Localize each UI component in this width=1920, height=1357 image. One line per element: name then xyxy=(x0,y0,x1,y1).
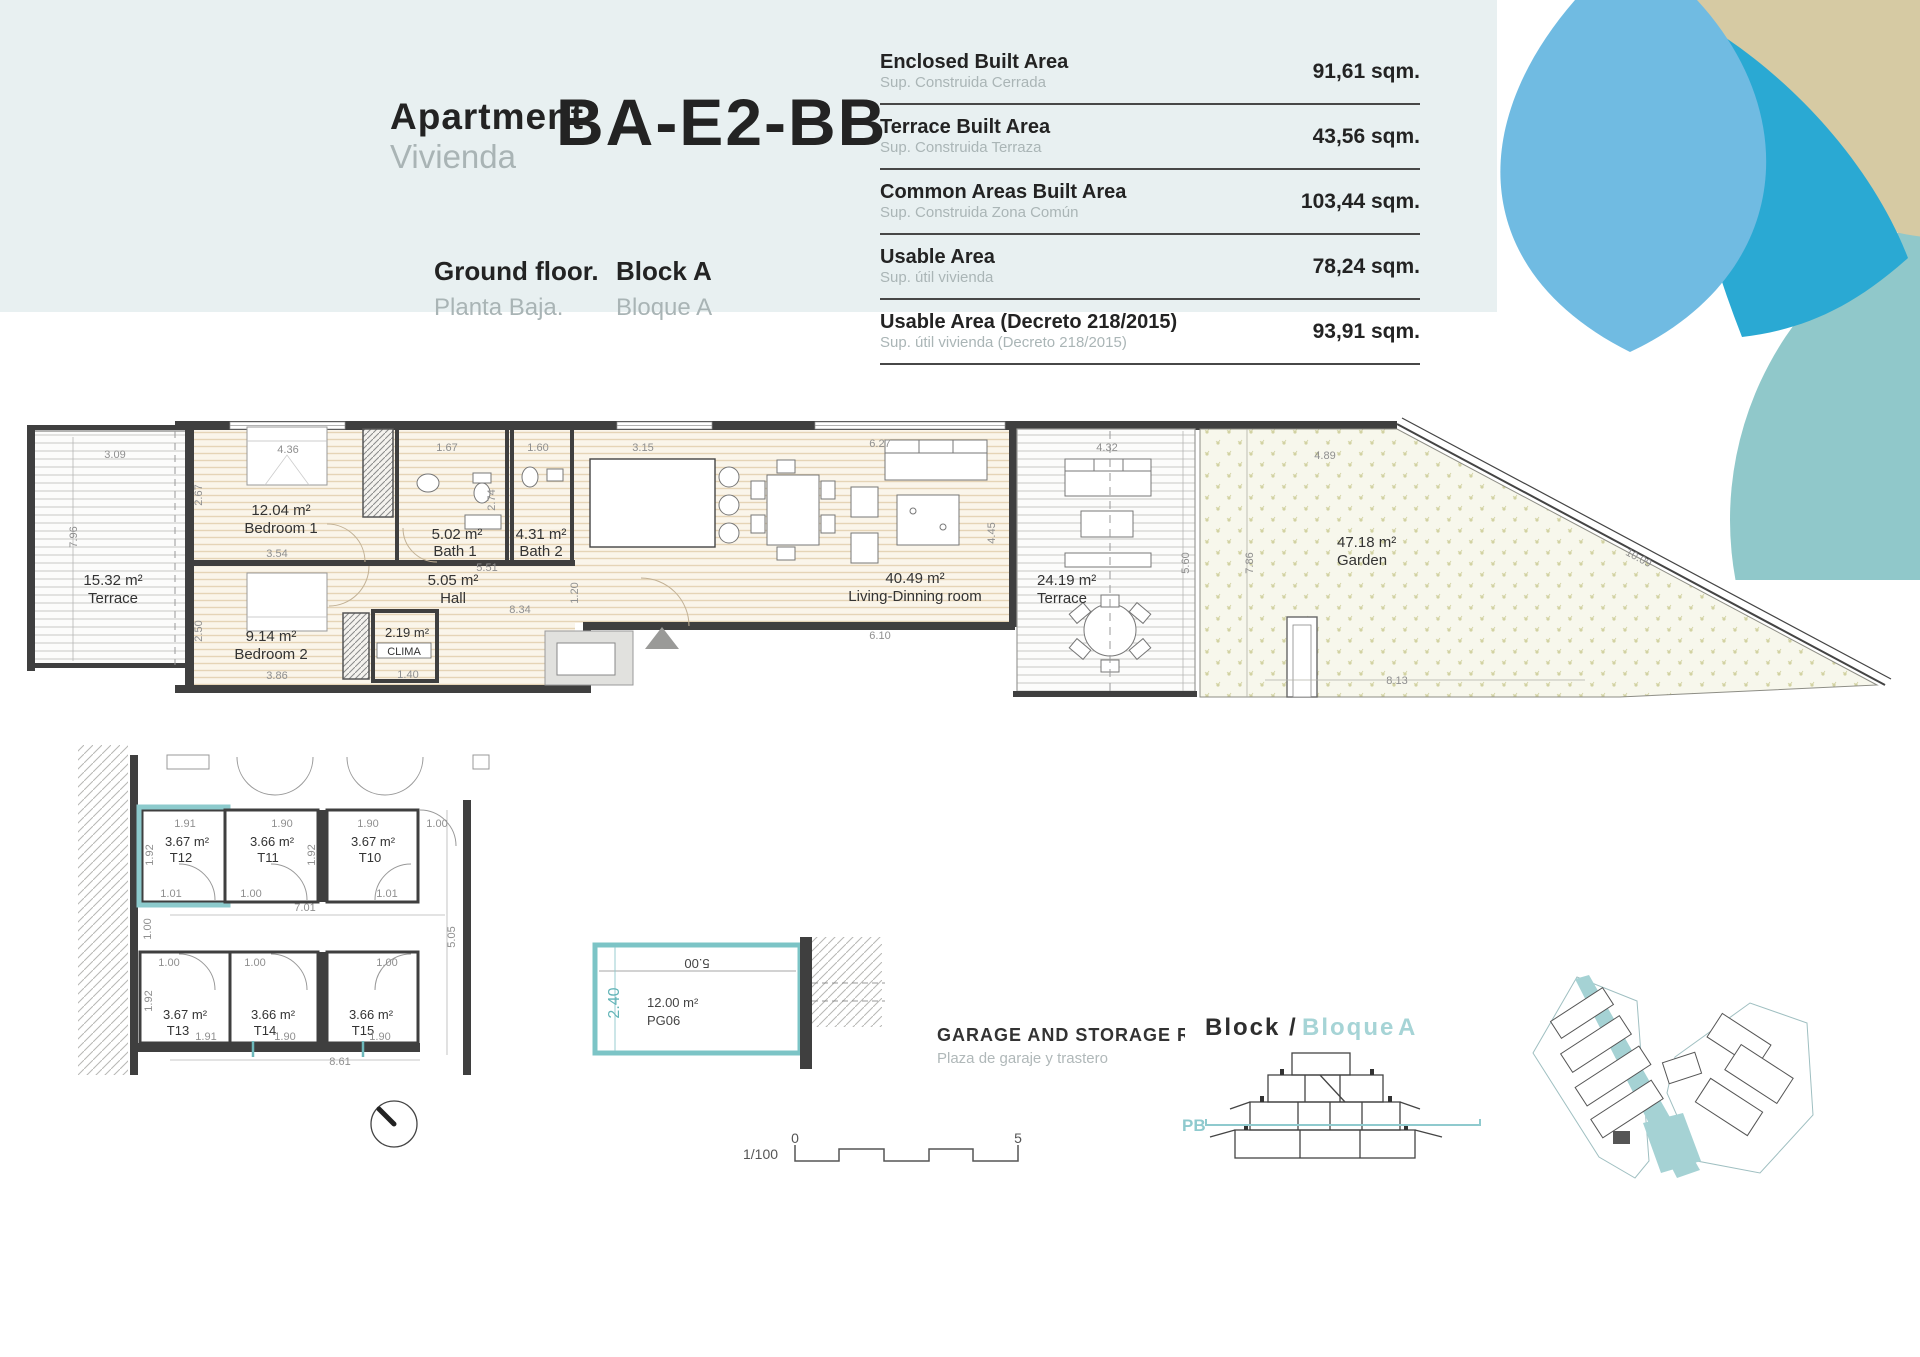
storage-code: T14 xyxy=(254,1023,276,1038)
room-name: Bedroom 2 xyxy=(234,646,307,663)
dim-text: 3.09 xyxy=(104,449,125,461)
dim-text: 6.27 xyxy=(869,438,890,450)
room-name: Hall xyxy=(440,590,466,607)
room-name: CLIMA xyxy=(387,646,421,658)
dim-text: 7.86 xyxy=(1244,552,1256,573)
dim-text: 1.92 xyxy=(144,844,156,865)
area-table: Enclosed Built Area Sup. Construida Cerr… xyxy=(880,40,1420,365)
dim-text: 5.05 xyxy=(446,926,458,947)
wardrobe1 xyxy=(363,429,393,517)
scale-bar: 1/100 0 5 xyxy=(735,1125,1035,1175)
terrace1-bottom-wall xyxy=(27,663,189,668)
room-area: 24.19 m² xyxy=(1037,572,1096,589)
storage-area: 3.66 m² xyxy=(251,1007,296,1022)
storage-code: T12 xyxy=(170,850,192,865)
room-name: Garden xyxy=(1337,552,1387,569)
room-area: 12.04 m² xyxy=(251,502,310,519)
table-row: Usable Area Sup. útil vivienda 78,24 sqm… xyxy=(880,235,1420,300)
bottom-wall-left xyxy=(175,685,591,693)
row-value: 93,91 sqm. xyxy=(1313,320,1420,344)
block-label-en: Block A xyxy=(616,256,712,287)
room-name: Terrace xyxy=(88,590,138,607)
dim-text: 1.00 xyxy=(426,818,447,830)
garage-title-en: GARAGE AND STORAGE ROOM xyxy=(937,1025,1185,1045)
dim-text: 1.90 xyxy=(357,818,378,830)
dim-text: 5.60 xyxy=(1180,552,1192,573)
compass-icon xyxy=(368,1098,420,1150)
dim-text: 1.91 xyxy=(174,818,195,830)
stool xyxy=(719,495,739,515)
row-label-es: Sup. útil vivienda xyxy=(880,269,995,286)
dim-text: 8.13 xyxy=(1386,675,1407,687)
row-label-es: Sup. útil vivienda (Decreto 218/2015) xyxy=(880,334,1177,351)
row-label-en: Usable Area xyxy=(880,246,995,269)
room-area: 47.18 m² xyxy=(1337,534,1396,551)
section-drawing xyxy=(1210,1053,1442,1158)
dim-text: 4.32 xyxy=(1096,442,1117,454)
room-area: 5.05 m² xyxy=(428,572,479,589)
dim-text: 4.89 xyxy=(1314,450,1335,462)
table-row: Enclosed Built Area Sup. Construida Cerr… xyxy=(880,40,1420,105)
scale-zero: 0 xyxy=(791,1130,799,1146)
scale-five: 5 xyxy=(1014,1130,1022,1146)
unit-code: BA-E2-BB xyxy=(556,84,887,160)
bath2-sink xyxy=(547,469,563,481)
room-area: 4.31 m² xyxy=(516,526,567,543)
site-hatch xyxy=(78,745,128,1075)
row-value: 103,44 sqm. xyxy=(1301,190,1420,214)
storage-right-wall xyxy=(463,800,471,1075)
garage-title-es: Plaza de garaje y trastero xyxy=(937,1050,1108,1067)
room-name: Bath 2 xyxy=(519,543,562,560)
dim-text: 1.90 xyxy=(369,1031,390,1043)
dim-text: 5.00 xyxy=(684,956,709,971)
floor-label-en: Ground floor. xyxy=(434,256,599,287)
bed1-bed xyxy=(247,427,327,485)
dim-text: 1.92 xyxy=(143,990,155,1011)
row-value: 91,61 sqm. xyxy=(1313,60,1420,84)
terrace2-bottom-wall xyxy=(1013,691,1197,697)
dim-text: 5.51 xyxy=(476,562,497,574)
room-name: Living-Dinning room xyxy=(848,588,981,605)
room-area: 40.49 m² xyxy=(885,570,944,587)
scale-wave xyxy=(795,1145,1018,1161)
row-value: 43,56 sqm. xyxy=(1313,125,1420,149)
storage-area: 3.66 m² xyxy=(250,834,295,849)
garage-wall xyxy=(800,937,812,1069)
storage-left-wall xyxy=(130,755,138,1075)
room-area: 5.02 m² xyxy=(432,526,483,543)
storage-area: 3.67 m² xyxy=(165,834,210,849)
storage-code: T11 xyxy=(257,850,278,865)
apartment-label-en: Apartment xyxy=(390,96,584,138)
stool xyxy=(719,467,739,487)
kitchen-counter xyxy=(590,459,715,547)
garden-gate-leaf xyxy=(1293,625,1311,697)
dim-text: 6.10 xyxy=(869,630,890,642)
bed2-bed xyxy=(247,573,327,631)
entrance-arrow xyxy=(645,627,679,649)
plan-sheet: Apartment Vivienda BA-E2-BB Ground floor… xyxy=(0,0,1920,1357)
dim-text: 1.90 xyxy=(274,1031,295,1043)
dim-text: 1.01 xyxy=(376,888,397,900)
living-right-wall xyxy=(1009,427,1017,627)
block-section-title-en: Block / xyxy=(1205,1014,1298,1041)
room-name: Bath 1 xyxy=(433,543,476,560)
terrace1-top-wall xyxy=(27,425,189,430)
level-label: PB xyxy=(1182,1116,1206,1135)
pb-level-line xyxy=(1206,1119,1480,1125)
bath2-toilet xyxy=(522,467,538,487)
dim-text: 2.67 xyxy=(193,484,205,505)
neighbour-fragments xyxy=(167,755,489,795)
dim-text: 2.50 xyxy=(193,620,205,641)
storage-bottom-wall xyxy=(138,1043,420,1052)
dim-text: 7.01 xyxy=(294,902,315,914)
garage-plan: 5.00 2.40 12.00 m² PG06 GARAGE AND STORA… xyxy=(585,935,1185,1085)
dim-text: 3.86 xyxy=(266,670,287,682)
block-section: Block / Bloque A PB xyxy=(1180,1005,1500,1185)
dim-text: 1.90 xyxy=(271,818,292,830)
dim-text: 1.20 xyxy=(569,582,581,603)
room-name: Terrace xyxy=(1037,590,1087,607)
storage-area: 3.67 m² xyxy=(351,834,396,849)
dim-text: 2.74 xyxy=(486,489,498,510)
bottom-wall-living xyxy=(590,622,1015,630)
left-wall xyxy=(185,421,194,693)
block-section-letter: A xyxy=(1398,1014,1417,1041)
block-section-title-es: Bloque xyxy=(1302,1014,1395,1041)
room-area: 9.14 m² xyxy=(246,628,297,645)
dim-text: 1.60 xyxy=(527,442,548,454)
apartment-label-es: Vivienda xyxy=(390,138,516,176)
site-plan xyxy=(1525,965,1825,1190)
row-label-en: Enclosed Built Area xyxy=(880,51,1068,74)
bath1-sink xyxy=(417,474,439,492)
row-value: 78,24 sqm. xyxy=(1313,255,1420,279)
storage-area: 3.67 m² xyxy=(163,1007,208,1022)
bath1-cistern xyxy=(473,473,491,483)
scale-ratio: 1/100 xyxy=(743,1146,778,1162)
dim-text: 3.54 xyxy=(266,548,287,560)
dim-text: 1.00 xyxy=(142,918,154,939)
row-label-en: Usable Area (Decreto 218/2015) xyxy=(880,311,1177,334)
terrace1-deck xyxy=(33,431,189,665)
dim-text: 1.91 xyxy=(195,1031,216,1043)
dim-text: 1.00 xyxy=(376,957,397,969)
floor-label-es: Planta Baja. xyxy=(434,294,563,322)
wardrobe2 xyxy=(343,613,369,679)
deco-lightblue-petal xyxy=(1500,0,1766,352)
storage-plan: 1.91 3.67 m² T12 1.92 1.01 1.90 3.66 m² … xyxy=(75,745,495,1080)
dim-text: 1.67 xyxy=(436,442,457,454)
table-row: Terrace Built Area Sup. Construida Terra… xyxy=(880,105,1420,170)
room-area: 2.19 m² xyxy=(385,625,430,640)
dim-text: 1.00 xyxy=(244,957,265,969)
table-row: Common Areas Built Area Sup. Construida … xyxy=(880,170,1420,235)
dim-text: 3.15 xyxy=(632,442,653,454)
dim-text: 7.96 xyxy=(68,526,80,547)
garage-code: PG06 xyxy=(647,1013,680,1028)
dim-text: 4.45 xyxy=(986,522,998,543)
garage-hatch xyxy=(812,937,882,1027)
dim-text: 8.34 xyxy=(509,604,530,616)
storage-area: 3.66 m² xyxy=(349,1007,394,1022)
garage-area: 12.00 m² xyxy=(647,995,699,1010)
block-label-es: Bloque A xyxy=(616,294,712,322)
entry-step xyxy=(557,643,615,675)
dim-text: 1.01 xyxy=(160,888,181,900)
dim-text: 1.00 xyxy=(240,888,261,900)
dim-text: 4.36 xyxy=(277,444,298,456)
dim-text: 1.40 xyxy=(397,669,418,681)
storage-code: T10 xyxy=(359,850,381,865)
row-label-es: Sup. Construida Terraza xyxy=(880,139,1050,156)
room-area: 15.32 m² xyxy=(83,572,142,589)
stool xyxy=(719,523,739,543)
room-name: Bedroom 1 xyxy=(244,520,317,537)
dim-text: 1.00 xyxy=(158,957,179,969)
storage-code: T13 xyxy=(167,1023,189,1038)
table-row: Usable Area (Decreto 218/2015) Sup. útil… xyxy=(880,300,1420,365)
row-label-en: Common Areas Built Area xyxy=(880,181,1126,204)
dim-text: 2.40 xyxy=(606,987,623,1018)
row-label-en: Terrace Built Area xyxy=(880,116,1050,139)
dim-text: 8.61 xyxy=(329,1056,350,1068)
row-label-es: Sup. Construida Zona Común xyxy=(880,204,1126,221)
highlighted-block xyxy=(1613,1131,1630,1144)
row-label-es: Sup. Construida Cerrada xyxy=(880,74,1068,91)
dim-text: 1.92 xyxy=(306,844,318,865)
apartment-floorplan: 3.09 7.96 4.36 2.67 3.54 1.67 2.74 1.60 … xyxy=(25,415,1895,715)
terrace1-left-wall xyxy=(27,425,35,671)
